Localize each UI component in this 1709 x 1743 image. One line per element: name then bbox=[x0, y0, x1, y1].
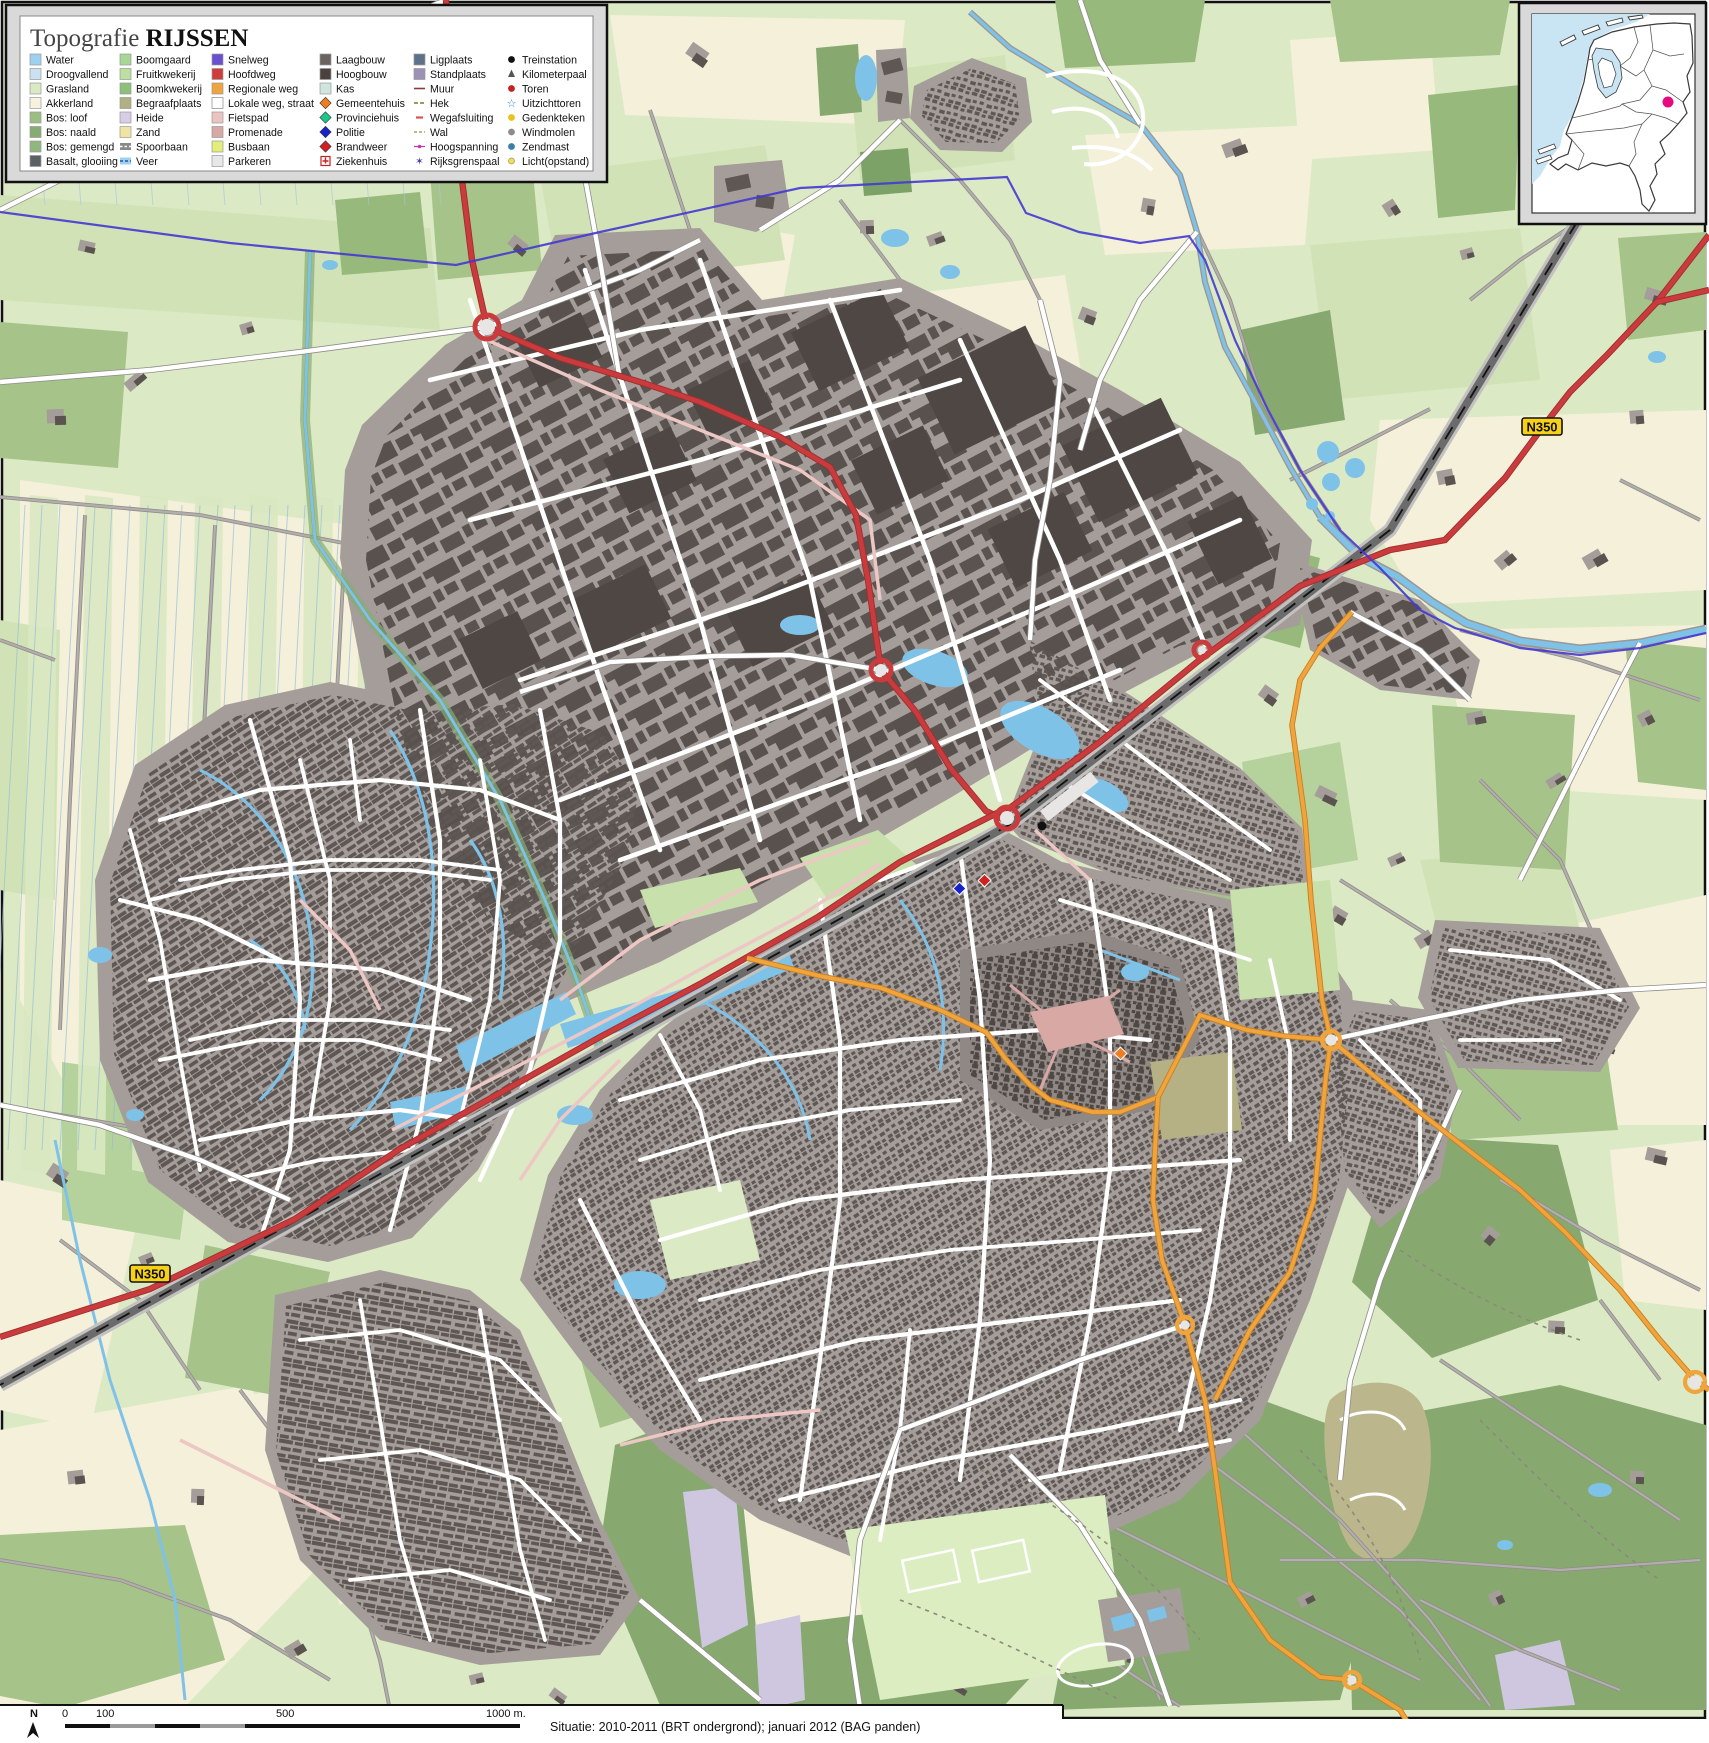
svg-text:Boomkwekerij: Boomkwekerij bbox=[136, 84, 202, 96]
svg-text:Spoorbaan: Spoorbaan bbox=[136, 142, 188, 154]
svg-text:N350: N350 bbox=[134, 1267, 165, 1282]
svg-text:Uitzichttoren: Uitzichttoren bbox=[522, 98, 581, 110]
svg-text:Bos: gemengd: Bos: gemengd bbox=[46, 142, 114, 154]
svg-text:Akkerland: Akkerland bbox=[46, 98, 93, 110]
svg-text:Topografie RIJSSEN: Topografie RIJSSEN bbox=[30, 25, 248, 52]
svg-text:Hek: Hek bbox=[430, 98, 450, 110]
svg-text:Provinciehuis: Provinciehuis bbox=[336, 113, 399, 125]
svg-text:Toren: Toren bbox=[522, 84, 549, 96]
svg-text:Kas: Kas bbox=[336, 84, 354, 96]
svg-text:Hoogbouw: Hoogbouw bbox=[336, 69, 387, 81]
svg-text:Fruitkwekerij: Fruitkwekerij bbox=[136, 69, 195, 81]
svg-text:Water: Water bbox=[46, 55, 74, 67]
svg-text:100: 100 bbox=[96, 1708, 114, 1720]
svg-text:Bos: naald: Bos: naald bbox=[46, 127, 96, 139]
svg-text:1000 m.: 1000 m. bbox=[486, 1708, 526, 1720]
svg-text:Veer: Veer bbox=[136, 156, 158, 168]
svg-text:Licht(opstand): Licht(opstand) bbox=[522, 156, 589, 168]
svg-text:Ligplaats: Ligplaats bbox=[430, 55, 472, 67]
svg-text:Standplaats: Standplaats bbox=[430, 69, 486, 81]
svg-text:Laagbouw: Laagbouw bbox=[336, 55, 385, 67]
svg-text:Lokale weg, straat: Lokale weg, straat bbox=[228, 98, 314, 110]
svg-text:Kilometerpaal: Kilometerpaal bbox=[522, 69, 587, 81]
svg-text:Basalt, glooiing: Basalt, glooiing bbox=[46, 156, 118, 168]
svg-text:Boomgaard: Boomgaard bbox=[136, 55, 191, 67]
svg-text:Ziekenhuis: Ziekenhuis bbox=[336, 156, 387, 168]
svg-text:500: 500 bbox=[276, 1708, 294, 1720]
svg-text:Windmolen: Windmolen bbox=[522, 127, 575, 139]
svg-text:Snelweg: Snelweg bbox=[228, 55, 269, 67]
svg-text:0: 0 bbox=[62, 1708, 68, 1720]
svg-text:Hoofdweg: Hoofdweg bbox=[228, 69, 276, 81]
svg-text:✶: ✶ bbox=[415, 157, 423, 168]
svg-text:Busbaan: Busbaan bbox=[228, 142, 270, 154]
svg-text:Bos: loof: Bos: loof bbox=[46, 113, 87, 125]
svg-text:Wegafsluiting: Wegafsluiting bbox=[430, 113, 494, 125]
svg-text:Fietspad: Fietspad bbox=[228, 113, 269, 125]
svg-text:Begraafplaats: Begraafplaats bbox=[136, 98, 201, 110]
svg-text:Parkeren: Parkeren bbox=[228, 156, 271, 168]
svg-text:Hoogspanning: Hoogspanning bbox=[430, 142, 498, 154]
svg-text:Gemeentehuis: Gemeentehuis bbox=[336, 98, 405, 110]
svg-text:Regionale weg: Regionale weg bbox=[228, 84, 298, 96]
svg-text:Gedenkteken: Gedenkteken bbox=[522, 113, 585, 125]
svg-text:Zand: Zand bbox=[136, 127, 160, 139]
svg-text:Droogvallend: Droogvallend bbox=[46, 69, 109, 81]
svg-text:Treinstation: Treinstation bbox=[522, 55, 577, 67]
svg-text:Heide: Heide bbox=[136, 113, 164, 125]
svg-text:Situatie: 2010-2011 (BRT onder: Situatie: 2010-2011 (BRT ondergrond); ja… bbox=[550, 1720, 920, 1734]
svg-text:Promenade: Promenade bbox=[228, 127, 283, 139]
svg-text:N: N bbox=[30, 1708, 38, 1720]
svg-text:Grasland: Grasland bbox=[46, 84, 89, 96]
svg-text:Wal: Wal bbox=[430, 127, 448, 139]
svg-text:Brandweer: Brandweer bbox=[336, 142, 388, 154]
svg-text:Politie: Politie bbox=[336, 127, 365, 139]
svg-text:Rijksgrenspaal: Rijksgrenspaal bbox=[430, 156, 499, 168]
svg-text:Zendmast: Zendmast bbox=[522, 142, 569, 154]
svg-text:Muur: Muur bbox=[430, 84, 455, 96]
svg-text:☆: ☆ bbox=[507, 98, 517, 110]
svg-text:N350: N350 bbox=[1526, 420, 1557, 435]
